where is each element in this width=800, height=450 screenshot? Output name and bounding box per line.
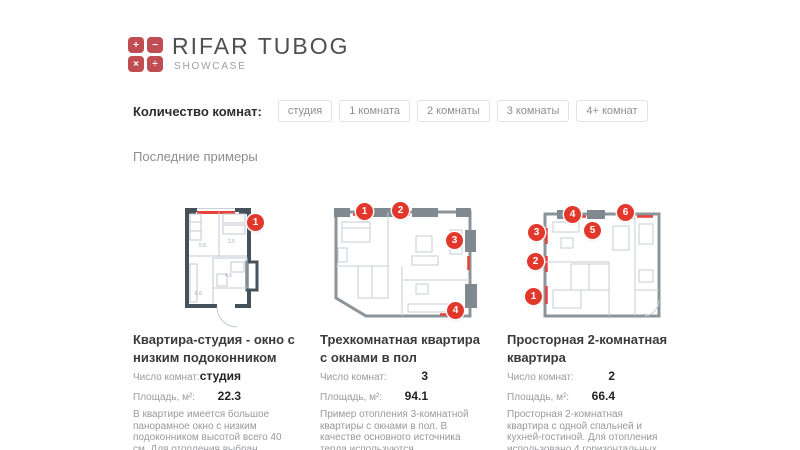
rooms-stat-value: студия: [200, 369, 241, 383]
room-area-label: 5.6: [199, 243, 206, 249]
radiator-marker-1: 1: [525, 288, 542, 305]
card-description: В квартире имеется большое панорамное ок…: [133, 409, 289, 450]
floor-plan-studio-drawing: 5.6 2.5 4.5 8.6: [133, 200, 303, 328]
area-stat: Площадь, м²: 22.3: [133, 389, 241, 403]
area-stat-label: Площадь, м²:: [133, 392, 195, 403]
card-description: Пример отопления 3-комнатной квартиры с …: [320, 409, 476, 450]
multiply-icon: ×: [128, 56, 144, 72]
radiator-marker-1: 1: [356, 203, 373, 220]
filter-button-1-room[interactable]: 1 комната: [339, 100, 410, 122]
area-stat-label: Площадь, м²:: [320, 392, 382, 403]
rooms-filter: Количество комнат: студия 1 комната 2 ко…: [133, 100, 648, 122]
filter-button-2-rooms[interactable]: 2 комнаты: [417, 100, 490, 122]
area-stat-label: Площадь, м²:: [507, 392, 569, 403]
radiator-marker-3: 3: [528, 224, 545, 241]
showcase-page: + − × ÷ RIFAR TUBOG SHOWCASE Количество …: [0, 0, 800, 450]
room-area-label: 2.5: [228, 239, 235, 245]
rooms-filter-label: Количество комнат:: [133, 104, 262, 119]
rooms-stat: Число комнат: студия: [133, 369, 241, 383]
area-stat: Площадь, м²: 66.4: [507, 389, 615, 403]
filter-button-studio[interactable]: студия: [278, 100, 332, 122]
radiator-marker-4: 4: [447, 302, 464, 319]
card-title: Квартира-студия - окно с низким подоконн…: [133, 331, 303, 367]
radiator-marker-5: 5: [584, 222, 601, 239]
example-card-studio[interactable]: 5.6 2.5 4.5 8.6 1 Квартира-студия - окно…: [133, 200, 303, 450]
card-stats: Число комнат: 3 Площадь, м²: 94.1: [320, 369, 490, 403]
examples-row: 5.6 2.5 4.5 8.6 1 Квартира-студия - окно…: [133, 200, 677, 450]
radiator-marker-4: 4: [564, 206, 581, 223]
card-description: Просторная 2-комнатная квартира с одной …: [507, 409, 663, 450]
card-title: Просторная 2-комнатная квартира: [507, 331, 677, 367]
brand-subtitle: SHOWCASE: [174, 61, 247, 72]
example-card-3-room[interactable]: 1 2 3 4 Трехкомнатная квартира с окнами …: [320, 200, 490, 450]
area-stat-value: 22.3: [218, 389, 241, 403]
rooms-stat: Число комнат: 3: [320, 369, 428, 383]
room-area-label: 8.6: [195, 291, 202, 297]
rooms-stat-label: Число комнат:: [507, 372, 574, 383]
floor-plan-2-room: 3 2 1 4 5 6: [507, 200, 677, 328]
minus-icon: −: [147, 37, 163, 53]
rooms-stat-label: Число комнат:: [320, 372, 387, 383]
filter-button-4plus-rooms[interactable]: 4+ комнат: [576, 100, 647, 122]
example-card-2-room[interactable]: 3 2 1 4 5 6 Просторная 2-комнатная кварт…: [507, 200, 677, 450]
room-area-label: 4.5: [225, 273, 232, 279]
radiator-marker-2: 2: [392, 202, 409, 219]
plus-icon: +: [128, 37, 144, 53]
section-title: Последние примеры: [133, 149, 258, 164]
floor-plan-3-room: 1 2 3 4: [320, 200, 490, 328]
area-stat: Площадь, м²: 94.1: [320, 389, 428, 403]
brand-title: RIFAR TUBOG: [172, 33, 350, 60]
divide-icon: ÷: [147, 56, 163, 72]
floor-plan-studio: 5.6 2.5 4.5 8.6 1: [133, 200, 303, 328]
radiator-marker-2: 2: [527, 253, 544, 270]
rooms-stat: Число комнат: 2: [507, 369, 615, 383]
rooms-stat-value: 2: [608, 369, 615, 383]
card-stats: Число комнат: 2 Площадь, м²: 66.4: [507, 369, 677, 403]
rooms-stat-label: Число комнат:: [133, 372, 200, 383]
radiator-marker-3: 3: [446, 232, 463, 249]
radiator-marker-1: 1: [247, 214, 264, 231]
filter-button-3-rooms[interactable]: 3 комнаты: [497, 100, 570, 122]
rifar-logo: + − × ÷: [128, 37, 163, 72]
radiator-marker-6: 6: [617, 204, 634, 221]
floor-plan-3-room-drawing: [320, 200, 490, 328]
area-stat-value: 94.1: [405, 389, 428, 403]
card-title: Трехкомнатная квартира с окнами в пол: [320, 331, 490, 367]
area-stat-value: 66.4: [592, 389, 615, 403]
rooms-stat-value: 3: [421, 369, 428, 383]
card-stats: Число комнат: студия Площадь, м²: 22.3: [133, 369, 303, 403]
